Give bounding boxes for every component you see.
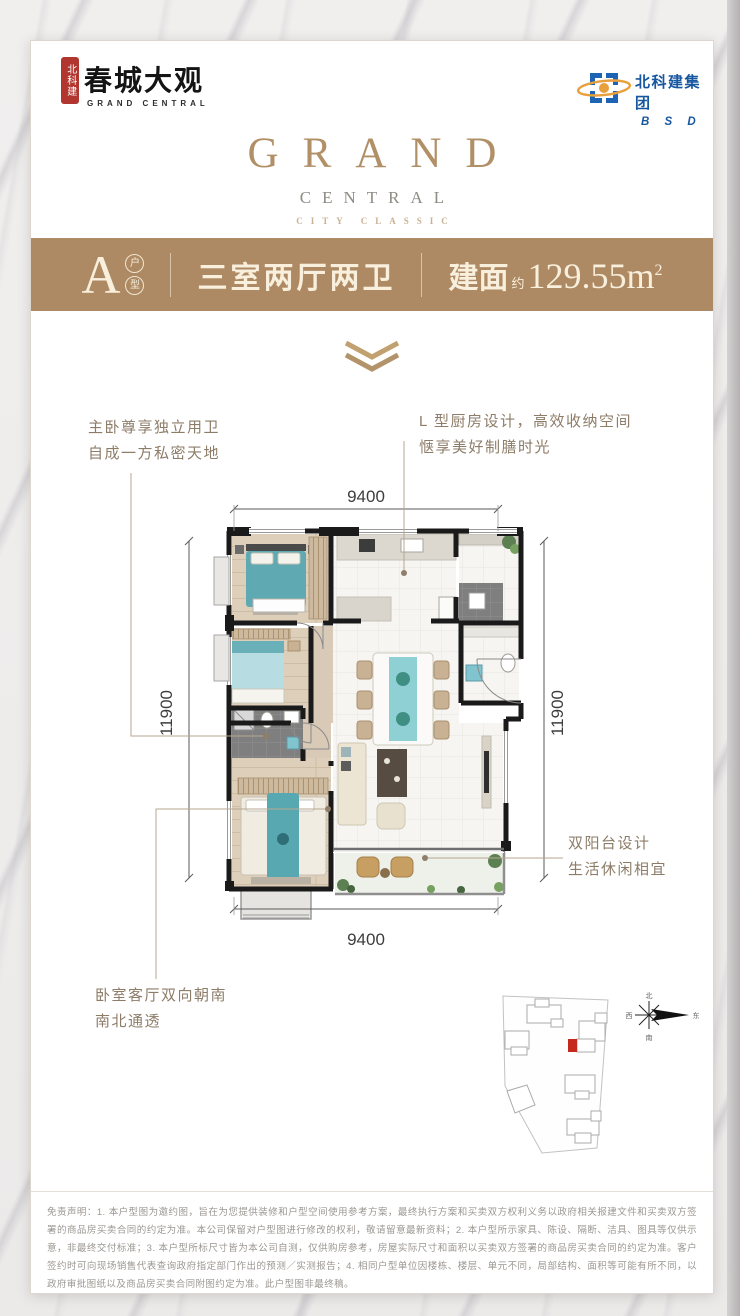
dim-left-label: 11900 <box>157 690 176 736</box>
poster-card: 北科建 春城大观 GRAND CENTRAL 北科建集团 B S D GRAND… <box>30 40 714 1294</box>
disclaimer-text: 免责声明：1. 本户型图为邀约图，旨在为您提供装修和户型空间使用参考方案，最终执… <box>31 1191 713 1294</box>
brand-seal: 北科建 <box>61 57 79 104</box>
unit-letter-block: A 户 型 <box>81 246 144 304</box>
compass-west: 西 <box>626 1012 633 1020</box>
compass-icon: 北 南 西 东 <box>626 992 700 1042</box>
brand-center: GRAND CENTRAL CITY CLASSIC <box>31 129 713 226</box>
site-map: 北 南 西 东 <box>494 987 712 1169</box>
brand-subtitle-center: CENTRAL <box>31 188 713 208</box>
compass-south: 南 <box>646 1033 653 1042</box>
layout-text: 三室两厅两卫 <box>197 253 395 297</box>
area-value: 129.55m <box>528 255 655 297</box>
banner-divider <box>170 253 171 297</box>
developer-logo-icon <box>576 65 632 111</box>
unit-letter: A <box>81 246 120 304</box>
brand-name: 春城大观 <box>84 59 204 99</box>
compass-east: 东 <box>693 1011 700 1020</box>
dim-top-label: 9400 <box>347 487 385 506</box>
dim-bottom-label: 9400 <box>347 930 385 949</box>
banner-divider <box>421 253 422 297</box>
area-approx: 约 <box>511 273 524 292</box>
developer-name: 北科建集团 <box>635 71 713 113</box>
unit-tag-char-2: 型 <box>125 276 144 295</box>
poster-page: 北科建 春城大观 GRAND CENTRAL 北科建集团 B S D GRAND… <box>0 0 740 1316</box>
floor-plan: 9400 9400 11900 11900 <box>61 436 611 1001</box>
developer-abbr: B S D <box>641 116 713 128</box>
marble-edge <box>727 0 740 1316</box>
note-line: L 型厨房设计，高效收纳空间 <box>419 409 632 435</box>
brand-tagline: CITY CLASSIC <box>31 216 713 226</box>
chevron-down-icon <box>340 341 404 377</box>
unit-tag-char-1: 户 <box>125 254 144 273</box>
unit-tag: 户 型 <box>125 254 144 295</box>
developer-text: 北科建集团 B S D <box>635 71 713 128</box>
dim-right-label: 11900 <box>548 690 567 736</box>
highlighted-building <box>568 1039 577 1052</box>
brand-subtitle: GRAND CENTRAL <box>87 99 209 108</box>
unit-banner: A 户 型 三室两厅两卫 建面 约 129.55m 2 <box>31 238 713 311</box>
compass-north: 北 <box>646 992 653 1000</box>
area-text: 建面 约 129.55m 2 <box>448 253 662 297</box>
brand-title: GRAND <box>31 129 713 178</box>
seal-text: 北科建 <box>63 64 77 97</box>
note-line: 南北通透 <box>95 1009 227 1035</box>
area-label: 建面 <box>448 253 508 297</box>
area-superscript: 2 <box>655 262 663 280</box>
